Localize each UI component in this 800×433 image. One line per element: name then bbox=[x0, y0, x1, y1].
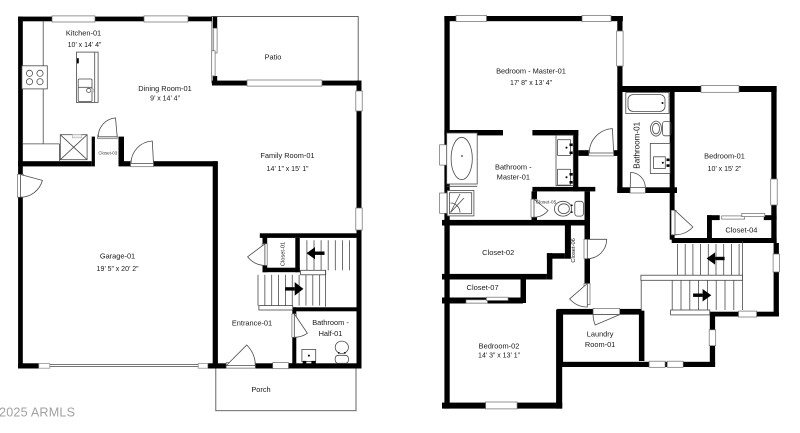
svg-text:2025 ARMLS: 2025 ARMLS bbox=[0, 406, 75, 420]
svg-text:Bedroom - Master-01: Bedroom - Master-01 bbox=[496, 67, 566, 76]
svg-text:Garage-01: Garage-01 bbox=[100, 252, 135, 261]
svg-text:14’ 1” x 15’ 1”: 14’ 1” x 15’ 1” bbox=[267, 166, 310, 173]
svg-text:17’ 8” x 13’ 4”: 17’ 8” x 13’ 4” bbox=[510, 80, 553, 87]
svg-text:Closet-06: Closet-06 bbox=[571, 238, 577, 262]
svg-text:Patio: Patio bbox=[265, 53, 282, 62]
svg-text:Closet-02: Closet-02 bbox=[482, 248, 514, 257]
svg-text:Room-01: Room-01 bbox=[585, 340, 615, 349]
svg-text:Laundry: Laundry bbox=[587, 330, 614, 339]
svg-text:Dining Room-01: Dining Room-01 bbox=[138, 84, 191, 93]
svg-text:9’ x 14’ 4”: 9’ x 14’ 4” bbox=[150, 96, 180, 103]
svg-text:Bedroom-02: Bedroom-02 bbox=[479, 341, 520, 350]
svg-text:10’ x 14’ 4”: 10’ x 14’ 4” bbox=[68, 42, 102, 49]
svg-text:Kitchen-01: Kitchen-01 bbox=[66, 28, 101, 37]
svg-text:10’ x 15’ 2”: 10’ x 15’ 2” bbox=[708, 166, 742, 173]
svg-text:Closet-03: Closet-03 bbox=[98, 150, 117, 155]
svg-text:Bathroom -: Bathroom - bbox=[495, 163, 532, 172]
svg-text:Bathroom -: Bathroom - bbox=[312, 318, 349, 327]
svg-text:Family Room-01: Family Room-01 bbox=[260, 151, 314, 160]
svg-text:Closet-05: Closet-05 bbox=[536, 200, 557, 206]
svg-text:Bathroom-01: Bathroom-01 bbox=[632, 121, 641, 168]
svg-text:Closet-01: Closet-01 bbox=[280, 242, 286, 266]
svg-text:Closet-07: Closet-07 bbox=[467, 283, 499, 292]
svg-text:Master-01: Master-01 bbox=[497, 173, 530, 182]
svg-text:19’ 5” x 20’ 2”: 19’ 5” x 20’ 2” bbox=[97, 266, 140, 273]
svg-text:Bedroom-01: Bedroom-01 bbox=[704, 152, 745, 161]
svg-text:Porch: Porch bbox=[251, 385, 270, 394]
svg-text:Entrance-01: Entrance-01 bbox=[232, 319, 272, 328]
svg-text:14’ 3” x 13’ 1”: 14’ 3” x 13’ 1” bbox=[478, 353, 521, 360]
svg-text:Half-01: Half-01 bbox=[319, 329, 343, 338]
svg-text:Closet-04: Closet-04 bbox=[725, 225, 757, 234]
